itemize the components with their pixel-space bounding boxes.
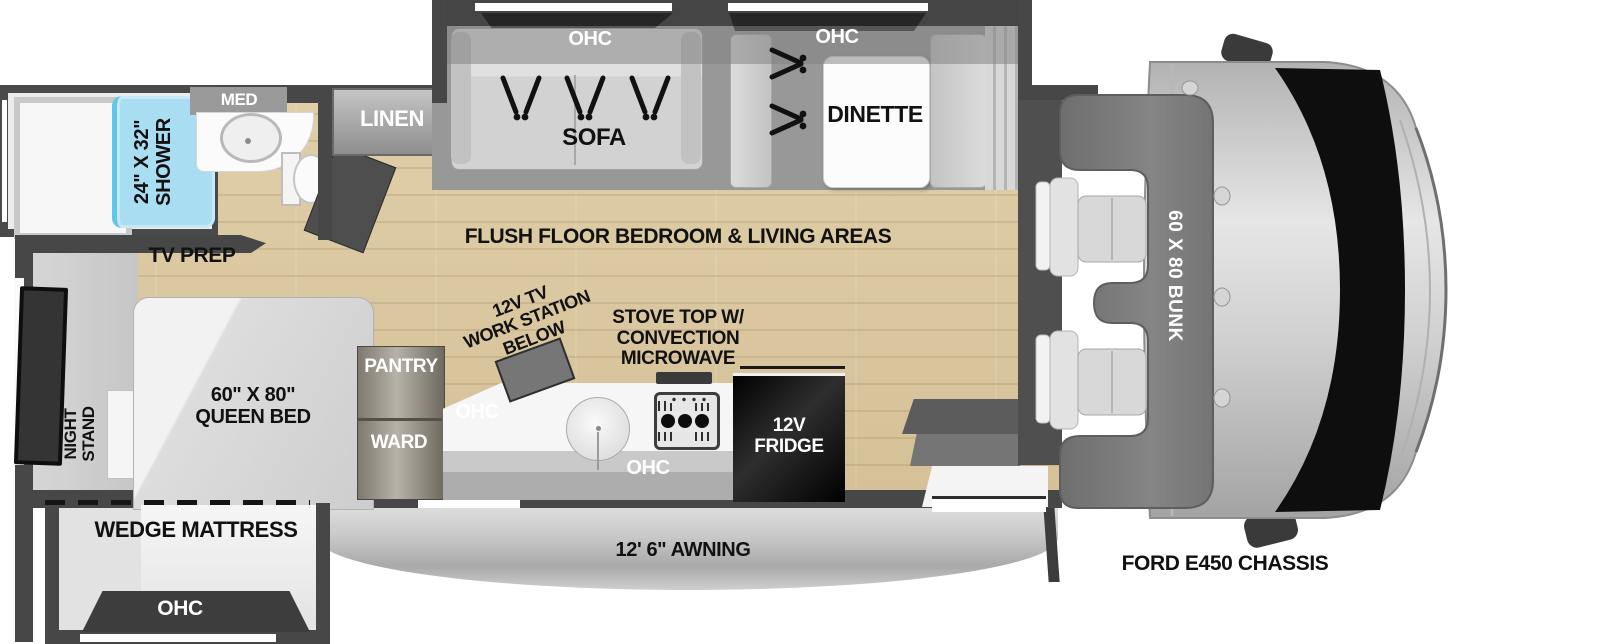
stove-burner-3 [695, 414, 709, 428]
hinge-knob-4 [1182, 81, 1198, 95]
kitchen-sink-handle [597, 432, 599, 470]
sink-icon [220, 113, 282, 163]
wedge-slide-window [80, 634, 276, 642]
cab-seat-passenger [1036, 331, 1146, 429]
pantry-label: PANTRY [356, 357, 446, 378]
tv-icon [14, 286, 68, 466]
shower-label: 24" X 32" SHOWER [132, 105, 188, 219]
bathroom-slide-window [2, 100, 7, 222]
med-label: MED [196, 91, 282, 109]
kitchen-sink-faucet [596, 426, 601, 431]
ward-label: WARD [354, 433, 444, 454]
queen-bed-label: 60" X 80" QUEEN BED [163, 385, 343, 428]
stove-label: STOVE TOP W/ CONVECTION MICROWAVE [598, 308, 758, 370]
ohc-kitchen-lower-label: OHC [610, 458, 686, 480]
sink-drain [245, 138, 251, 144]
top-slide: OHC OHC SOFA DINETTE [432, 0, 1018, 190]
awning-label: 12' 6" AWNING [543, 540, 823, 562]
stove-icon [654, 392, 720, 450]
hinge-knob-1 [1214, 187, 1230, 205]
hinge-knob-3 [1214, 389, 1230, 407]
night-stand-label: NIGHT STAND [62, 379, 106, 489]
cab-seat-driver [1036, 178, 1146, 276]
ohc-dinette-label: OHC [799, 27, 875, 49]
flush-floor-label: FLUSH FLOOR BEDROOM & LIVING AREAS [458, 226, 898, 249]
pantry-ward-divider [358, 418, 442, 421]
stove-burner-2 [678, 414, 692, 428]
wedge-ohc-label: OHC [142, 598, 218, 621]
dinette-label: DINETTE [815, 102, 935, 127]
hinge-knob-2 [1214, 288, 1230, 306]
bath-linen-wall [318, 88, 332, 240]
wedge-slide-wall-left [45, 503, 59, 644]
slide-left-wall [432, 0, 447, 103]
ohc-sofa-label: OHC [552, 29, 628, 51]
seatbelt-icons [432, 0, 1018, 190]
sofa-label: SOFA [542, 125, 646, 151]
stove-knobs [669, 396, 709, 403]
rv-floorplan: 24" X 32" SHOWER MED LINEN TV PREP [0, 0, 1600, 644]
cab-chassis-graphic [1000, 0, 1600, 644]
tv-prep-label: TV PREP [112, 245, 272, 268]
ohc-kitchen-upper-label: OHC [439, 402, 515, 424]
bottom-wall-window [418, 499, 520, 508]
wedge-fold-dashed-line [45, 500, 310, 505]
stove-burner-1 [661, 414, 675, 428]
bunk-shape [1060, 95, 1213, 508]
bunk-label: 60 X 80 BUNK [1160, 201, 1184, 351]
stove-vent-bar [656, 372, 712, 384]
fridge-label: 12V FRIDGE [743, 416, 835, 457]
wedge-mattress-label: WEDGE MATTRESS [61, 518, 331, 542]
chassis-label: FORD E450 CHASSIS [1105, 553, 1345, 576]
